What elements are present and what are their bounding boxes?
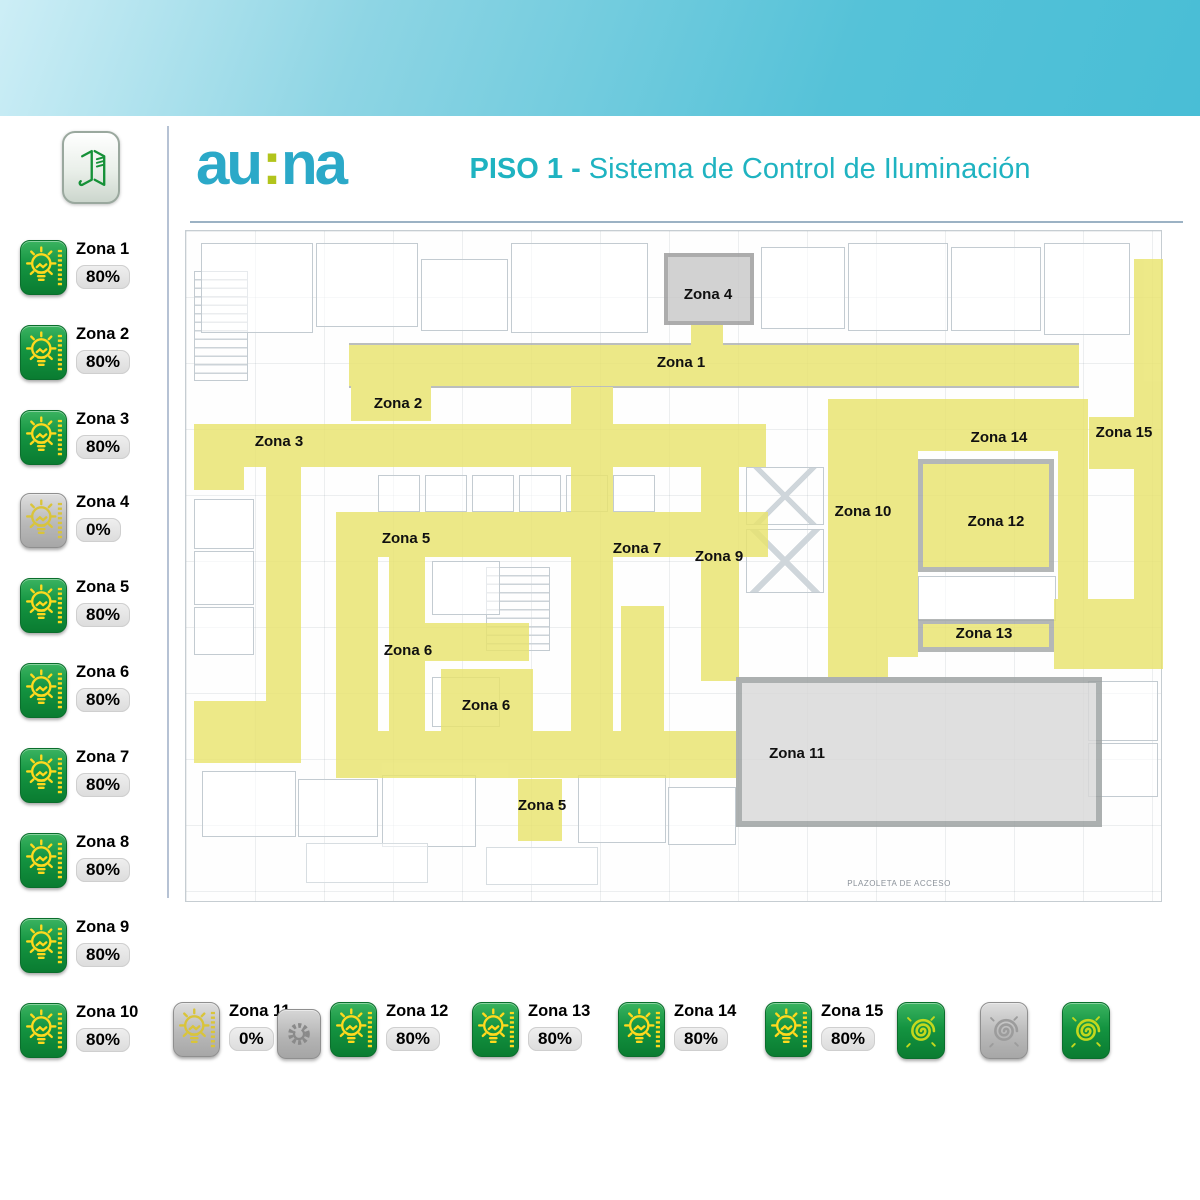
zone-label: Zona 12: [386, 1002, 448, 1021]
zone-7-highlight: [571, 387, 613, 731]
lightbulb-icon: [24, 497, 64, 545]
lightbulb-icon: [24, 837, 64, 885]
zone-level-badge: 80%: [76, 943, 130, 967]
zone-3-highlight: [266, 467, 301, 703]
zone-item-1: Zona 180%: [20, 240, 130, 295]
lightbulb-icon: [24, 329, 64, 377]
zone-label: Zona 3: [76, 410, 129, 429]
auna-logo: au:na: [196, 134, 345, 194]
open-book-icon: [69, 140, 113, 196]
navigation-book-button[interactable]: [62, 131, 120, 204]
plan-zone-label: Zona 6: [462, 697, 510, 714]
plan-zone-label: Zona 14: [971, 429, 1028, 446]
scada-lighting-page: au:na PISO 1 - Sistema de Control de Ilu…: [0, 0, 1200, 1200]
plan-zone-label: Zona 1: [657, 354, 705, 371]
zone-9-light-button[interactable]: [20, 918, 67, 973]
zone-level-badge: 0%: [76, 518, 121, 542]
zone-label: Zona 4: [76, 493, 129, 512]
zone-highlight-layer: [186, 231, 1161, 901]
zone-label: Zona 14: [674, 1002, 736, 1021]
zone-level-badge: 80%: [76, 1028, 130, 1052]
lightbulb-icon: [24, 1007, 64, 1055]
zone-item-3: Zona 380%: [20, 410, 130, 465]
plan-zone-label: Zona 3: [255, 433, 303, 450]
zone-item-13: Zona 1380%: [472, 1002, 590, 1057]
lightbulb-icon: [24, 582, 64, 630]
zone-level-badge: 80%: [76, 350, 130, 374]
zone-3-highlight: [194, 424, 244, 490]
top-banner: [0, 0, 1200, 116]
zone-8-light-button[interactable]: [20, 833, 67, 888]
lightbulb-icon: [476, 1006, 516, 1054]
zone-label: Zona 2: [76, 325, 129, 344]
lightbulb-icon: [24, 922, 64, 970]
zone-level-badge: 80%: [76, 435, 130, 459]
scene-all-on-button-2[interactable]: [1062, 1002, 1110, 1059]
zone-item-7: Zona 780%: [20, 748, 130, 803]
plan-zone-label: Zona 12: [968, 513, 1025, 530]
plan-zone-label: Zona 7: [613, 540, 661, 557]
zone-label: Zona 13: [528, 1002, 590, 1021]
zone-level-badge: 80%: [386, 1027, 440, 1051]
zone-item-11: Zona 110%: [173, 1002, 333, 1057]
spiral-icon: [902, 1008, 940, 1054]
zone-item-2: Zona 280%: [20, 325, 130, 380]
spiral-icon: [985, 1008, 1023, 1054]
plan-zone-label: Zona 13: [956, 625, 1013, 642]
lightbulb-icon: [24, 244, 64, 292]
zone-item-5: Zona 580%: [20, 578, 130, 633]
lightbulb-icon: [24, 752, 64, 800]
zone-11-light-button[interactable]: [173, 1002, 220, 1057]
zone-label: Zona 10: [76, 1003, 138, 1022]
zone-level-badge: 80%: [76, 773, 130, 797]
zone-level-badge: 80%: [528, 1027, 582, 1051]
zone-label: Zona 9: [76, 918, 129, 937]
zone-6-light-button[interactable]: [20, 663, 67, 718]
zone-highlight: [621, 606, 664, 773]
zone-item-4: Zona 40%: [20, 493, 129, 548]
zone-14-highlight: [1058, 451, 1088, 657]
zone-label: Zona 7: [76, 748, 129, 767]
floor-plan: Zona 4 Zona 1 Zona 2 Zona 3 Zona 14 Zona…: [185, 230, 1162, 902]
zone-item-10: Zona 1080%: [20, 1003, 138, 1058]
zone-7-light-button[interactable]: [20, 748, 67, 803]
zone-level-badge: 0%: [229, 1027, 274, 1051]
zone-1-highlight: [349, 343, 1079, 388]
zone-3-light-button[interactable]: [20, 410, 67, 465]
zone-item-14: Zona 1480%: [618, 1002, 736, 1057]
plan-access-note: PLAZOLETA DE ACCESO: [847, 879, 951, 888]
scene-all-off-button[interactable]: [980, 1002, 1028, 1059]
zone-label: Zona 15: [821, 1002, 883, 1021]
zone-10-highlight: [828, 399, 888, 685]
plan-zone-label: Zona 5: [382, 530, 430, 547]
plan-zone-label: Zona 2: [374, 395, 422, 412]
zone-level-badge: 80%: [76, 858, 130, 882]
zone-item-9: Zona 980%: [20, 918, 130, 973]
lightbulb-icon: [24, 667, 64, 715]
zone-4-light-button[interactable]: [20, 493, 67, 548]
zone-label: Zona 8: [76, 833, 129, 852]
plan-zone-label: Zona 11: [769, 745, 825, 762]
spiral-icon: [1067, 1008, 1105, 1054]
zone-15-highlight: [1134, 259, 1163, 421]
header-divider: [190, 221, 1183, 223]
zone-5-highlight: [336, 731, 768, 778]
zone-level-badge: 80%: [674, 1027, 728, 1051]
gear-icon: [282, 1012, 316, 1056]
zone-15-light-button[interactable]: [765, 1002, 812, 1057]
lightbulb-icon: [622, 1006, 662, 1054]
zone-level-badge: 80%: [76, 603, 130, 627]
zone-14-light-button[interactable]: [618, 1002, 665, 1057]
zone-label: Zona 5: [76, 578, 129, 597]
zone-highlight: [194, 701, 301, 763]
zone-13-light-button[interactable]: [472, 1002, 519, 1057]
zone-11-settings-button[interactable]: [277, 1009, 321, 1059]
page-title: PISO 1 - Sistema de Control de Iluminaci…: [420, 153, 1080, 186]
lightbulb-icon: [177, 1006, 217, 1054]
plan-zone-label: Zona 6: [384, 642, 432, 659]
zone-label: Zona 1: [76, 240, 129, 259]
lightbulb-icon: [769, 1006, 809, 1054]
zone-1-light-button[interactable]: [20, 240, 67, 295]
zone-5-light-button[interactable]: [20, 578, 67, 633]
scene-all-on-button-1[interactable]: [897, 1002, 945, 1059]
plan-zone-label: Zona 9: [695, 548, 743, 565]
zone-10-light-button[interactable]: [20, 1003, 67, 1058]
plan-zone-label: Zona 15: [1096, 424, 1153, 441]
lightbulb-icon: [334, 1006, 374, 1054]
plan-zone-label: Zona 4: [684, 286, 732, 303]
zone-label: Zona 6: [76, 663, 129, 682]
zone-item-6: Zona 680%: [20, 663, 130, 718]
plan-zone-label: Zona 10: [835, 503, 892, 520]
lightbulb-icon: [24, 414, 64, 462]
plan-zone-label: Zona 5: [518, 797, 566, 814]
zone-14-highlight: [888, 451, 918, 657]
zone-level-badge: 80%: [76, 265, 130, 289]
zone-2-light-button[interactable]: [20, 325, 67, 380]
sidebar-divider: [167, 126, 169, 898]
zone-item-12: Zona 1280%: [330, 1002, 448, 1057]
zone-level-badge: 80%: [76, 688, 130, 712]
zone-level-badge: 80%: [821, 1027, 875, 1051]
zone-12-light-button[interactable]: [330, 1002, 377, 1057]
zone-item-15: Zona 1580%: [765, 1002, 883, 1057]
zone-item-8: Zona 880%: [20, 833, 130, 888]
